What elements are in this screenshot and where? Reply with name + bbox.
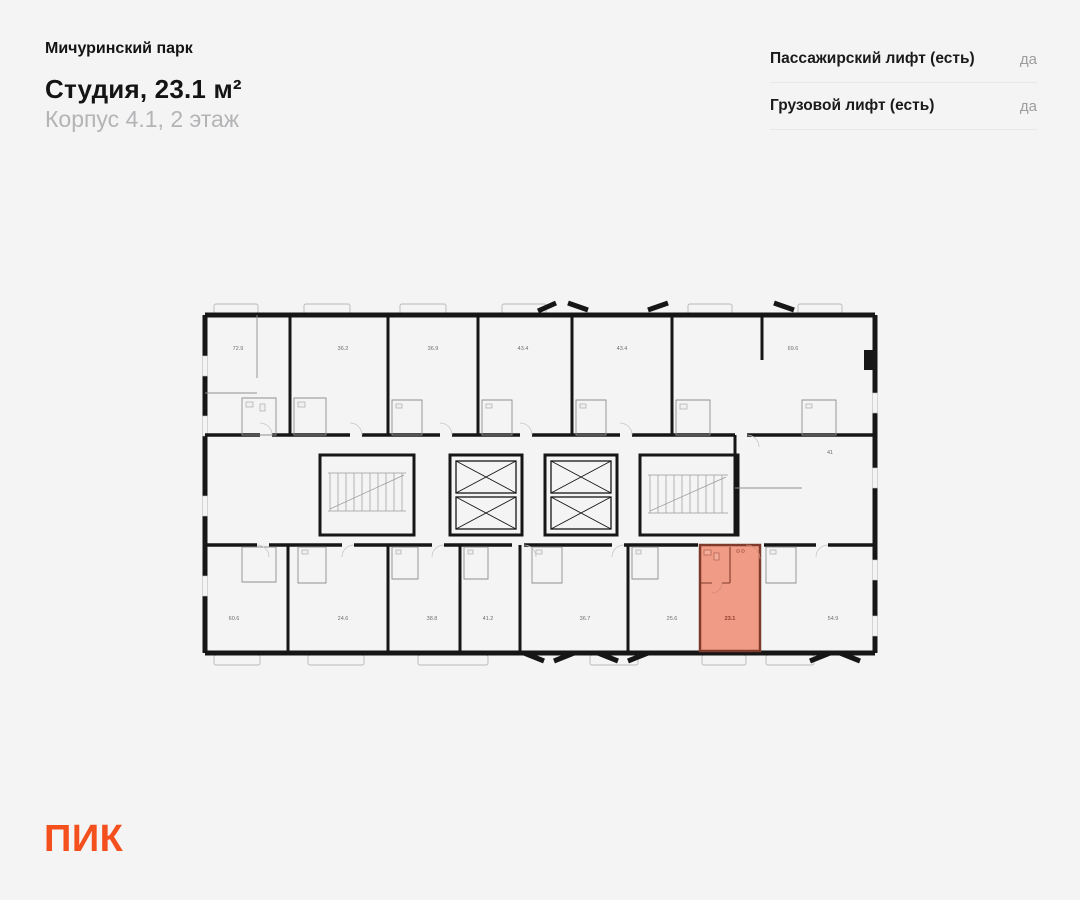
- stairwell-right: [640, 455, 738, 535]
- highlighted-unit-area-label: 23.1: [725, 616, 736, 622]
- apartment-title: Студия, 23.1 м²: [45, 74, 242, 105]
- feature-value: да: [1020, 98, 1037, 115]
- pik-logo[interactable]: ПИК: [44, 818, 123, 861]
- feature-list: Пассажирский лифт (есть) да Грузовой лиф…: [770, 36, 1037, 130]
- corridor-walls: [205, 435, 875, 545]
- unit-area-label: 25.6: [667, 616, 678, 622]
- unit-area-label: 36.7: [580, 616, 591, 622]
- unit-area-label: 43.4: [617, 346, 628, 352]
- bay-window-walls: [524, 303, 860, 661]
- unit-area-label: 69.6: [788, 346, 799, 352]
- bathroom-fixtures: [246, 402, 812, 554]
- highlighted-unit[interactable]: 23.1: [700, 545, 760, 651]
- unit-area-label: 41.2: [483, 616, 494, 622]
- interior-partitions: [205, 315, 836, 583]
- unit-area-label: 54.9: [828, 616, 839, 622]
- feature-row-cargo-elevator: Грузовой лифт (есть) да: [770, 83, 1037, 130]
- outer-walls: [205, 315, 875, 653]
- feature-row-passenger-elevator: Пассажирский лифт (есть) да: [770, 36, 1037, 83]
- door-arcs: [257, 423, 828, 557]
- elevator-shafts: [450, 455, 617, 535]
- unit-area-label: 72.9: [233, 346, 244, 352]
- unit-area-label: 36.2: [338, 346, 349, 352]
- feature-value: да: [1020, 51, 1037, 68]
- floor-plan: 23.1 72.9 36.2 36.9 43.4 43.4 69.6 41 60…: [202, 298, 878, 666]
- stairwell-left: [320, 455, 414, 535]
- unit-area-label: 41: [827, 450, 833, 456]
- unit-area-label: 38.8: [427, 616, 438, 622]
- unit-area-label: 43.4: [518, 346, 529, 352]
- wall-notch: [864, 350, 877, 370]
- unit-area-label: 24.6: [338, 616, 349, 622]
- unit-divider-walls: [288, 315, 762, 653]
- project-name: Мичуринский парк: [45, 40, 193, 58]
- feature-label: Грузовой лифт (есть): [770, 97, 934, 115]
- unit-area-label: 36.9: [428, 346, 439, 352]
- balconies-bottom: [214, 655, 814, 665]
- unit-area-label: 60.6: [229, 616, 240, 622]
- feature-label: Пассажирский лифт (есть): [770, 50, 975, 68]
- apartment-subtitle: Корпус 4.1, 2 этаж: [45, 106, 239, 133]
